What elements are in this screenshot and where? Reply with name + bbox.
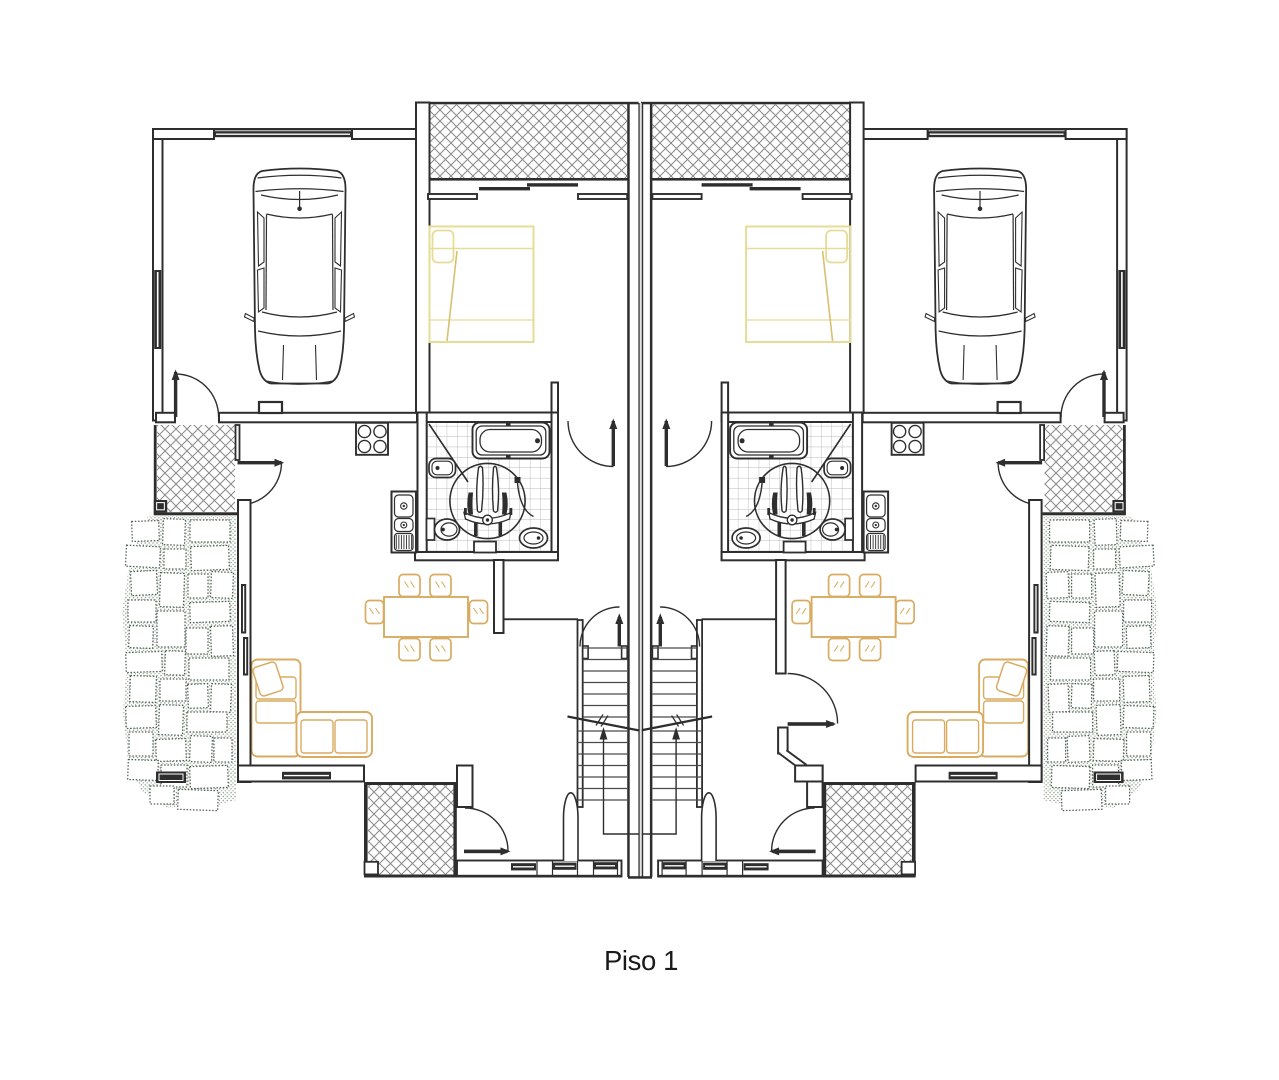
svg-text:Piso 1: Piso 1 (604, 945, 678, 976)
